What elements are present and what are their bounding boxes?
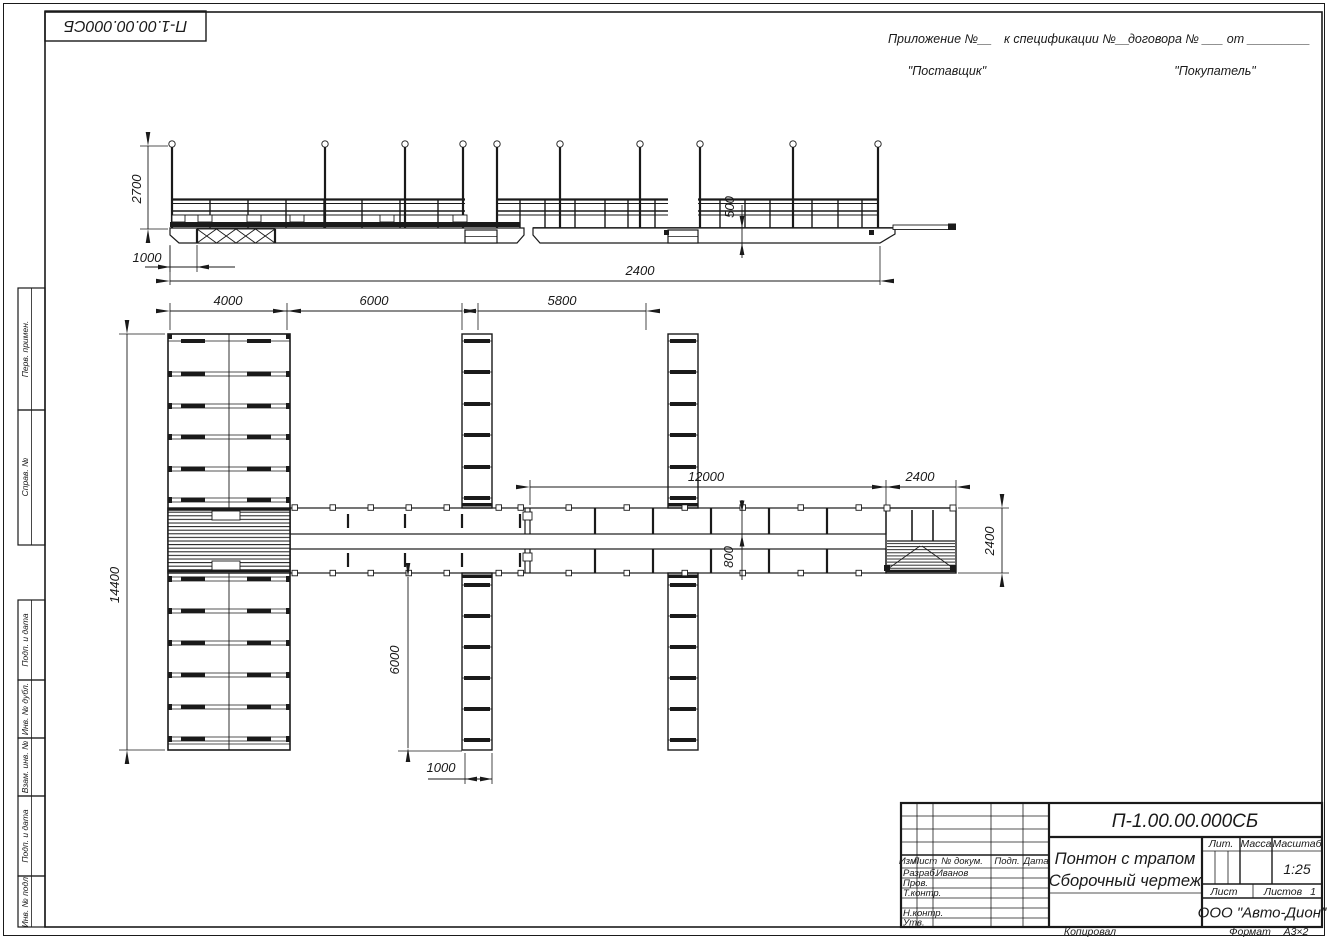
scale-label: Масштаб: [1272, 838, 1322, 850]
col-data: Дата: [1022, 856, 1048, 867]
document-name-line1: Понтон с трапом: [1055, 850, 1196, 868]
margin-label-inv-dubl: Инв. № дубл.: [20, 683, 30, 735]
margin-label-sprav-no: Справ. №: [20, 458, 30, 497]
margin-boxes: Перв. примен. Справ. № Подп. и дата Инв.…: [18, 288, 45, 927]
scissor-bracing: [197, 229, 275, 243]
block-ramp-hatch: [168, 508, 290, 573]
sheets-label: Листов: [1263, 886, 1303, 898]
dim-500: 500: [722, 195, 737, 217]
top-left-stamp: П-1.00.00.000СБ: [45, 11, 206, 41]
margin-label-podp-data-2: Подп. и дата: [20, 809, 30, 862]
col-podp: Подп.: [994, 856, 1019, 867]
dim-1000-pier: 1000: [427, 760, 457, 775]
dim-14400: 14400: [107, 566, 122, 603]
dim-2400-right: 2400: [982, 526, 997, 557]
dim-2400-elev: 2400: [625, 263, 656, 278]
margin-label-podp-data-1: Подп. и дата: [20, 613, 30, 666]
document-name-line2: Сборочный чертеж: [1049, 872, 1202, 890]
dim-12000: 12000: [688, 469, 725, 484]
format-label: Формат: [1229, 926, 1271, 938]
col-list: Лист: [912, 856, 938, 867]
row-tkontr: Т.контр.: [903, 888, 941, 899]
assembly-drawing: П-1.00.00.000СБ Перв. примен. Справ. № П…: [0, 0, 1328, 939]
buyer-label: "Покупатель": [1174, 64, 1256, 78]
drawing-sheet: П-1.00.00.000СБ Перв. примен. Справ. № П…: [0, 0, 1328, 939]
finger-pier-bottom-2: [668, 573, 698, 750]
scale-value: 1:25: [1283, 861, 1310, 877]
document-code: П-1.00.00.000СБ: [1112, 811, 1259, 832]
dim-5800: 5800: [548, 293, 578, 308]
walkway: [290, 505, 886, 576]
dim-4000: 4000: [214, 293, 244, 308]
razrab-name: Иванов: [936, 868, 968, 879]
dim-1000-elev: 1000: [133, 250, 163, 265]
company-name: ООО "Авто-Дион": [1198, 905, 1327, 922]
col-doc: № докум.: [941, 856, 983, 867]
copied-label: Копировал: [1064, 926, 1116, 938]
margin-label-vzam-inv: Взам. инв. №: [20, 741, 30, 794]
dim-6000-pier: 6000: [387, 645, 402, 675]
finger-pier-top-1: [462, 334, 492, 508]
title-block: Изм. Лист № докум. Подп. Дата Разраб. Ив…: [899, 803, 1327, 929]
row-utv: Утв.: [902, 918, 925, 929]
stamp-code: П-1.00.00.000СБ: [64, 17, 187, 34]
plan-view: 4000 6000 5800 12000 2400 14400 800 6000: [107, 293, 1009, 784]
main-pontoon-block: [168, 334, 290, 750]
header-note: Приложение №__ к спецификации №__ догово…: [888, 32, 1310, 78]
mass-label: Масса: [1240, 838, 1271, 850]
appendix-note: Приложение №__: [888, 32, 992, 46]
dim-2700: 2700: [129, 174, 144, 205]
margin-label-inv-podl: Инв. № подл.: [20, 875, 30, 928]
margin-label-perv-primen: Перв. примен.: [20, 321, 30, 378]
shore-ramp-block: [884, 505, 956, 573]
format-value: А3×2: [1283, 926, 1309, 938]
supplier-label: "Поставщик": [908, 64, 987, 78]
spec-note: к спецификации №__: [1004, 32, 1130, 46]
dim-2400-ramp: 2400: [905, 469, 936, 484]
elevation-view: 2700 1000 500 2400: [129, 141, 956, 285]
dim-800: 800: [721, 545, 736, 567]
boarding-plank: [893, 224, 956, 231]
lit-label: Лит.: [1208, 838, 1234, 850]
contract-note: договора № ___ от _________: [1128, 32, 1310, 46]
pontoon-hull: [170, 228, 895, 244]
sheet-label: Лист: [1209, 886, 1237, 898]
dim-6000-gap: 6000: [360, 293, 390, 308]
finger-pier-bottom-1: [462, 573, 492, 750]
sheets-value: 1: [1310, 886, 1316, 898]
walkway-cleats: [292, 505, 862, 576]
